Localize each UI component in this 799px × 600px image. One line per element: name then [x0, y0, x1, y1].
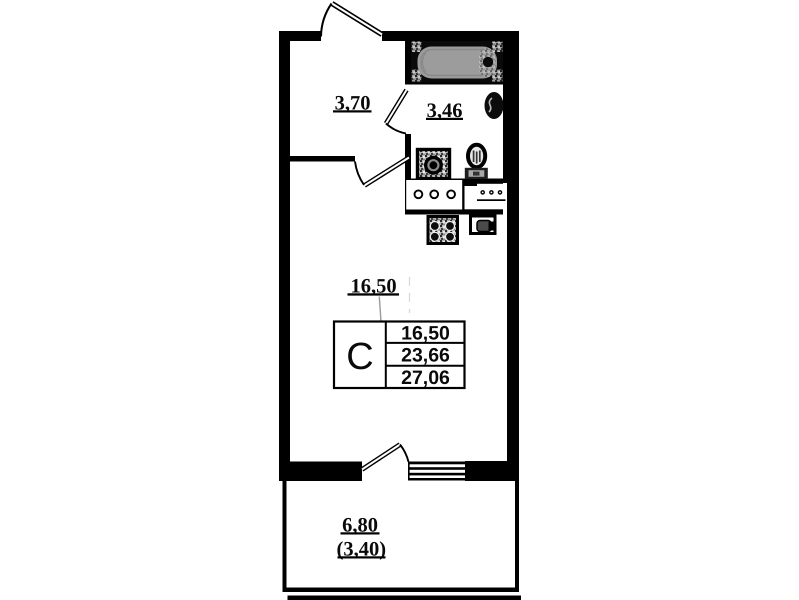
svg-text:23,66: 23,66	[401, 345, 450, 367]
svg-text:16,50: 16,50	[401, 323, 450, 345]
svg-text:С: С	[346, 336, 373, 378]
svg-text:27,06: 27,06	[401, 367, 450, 389]
